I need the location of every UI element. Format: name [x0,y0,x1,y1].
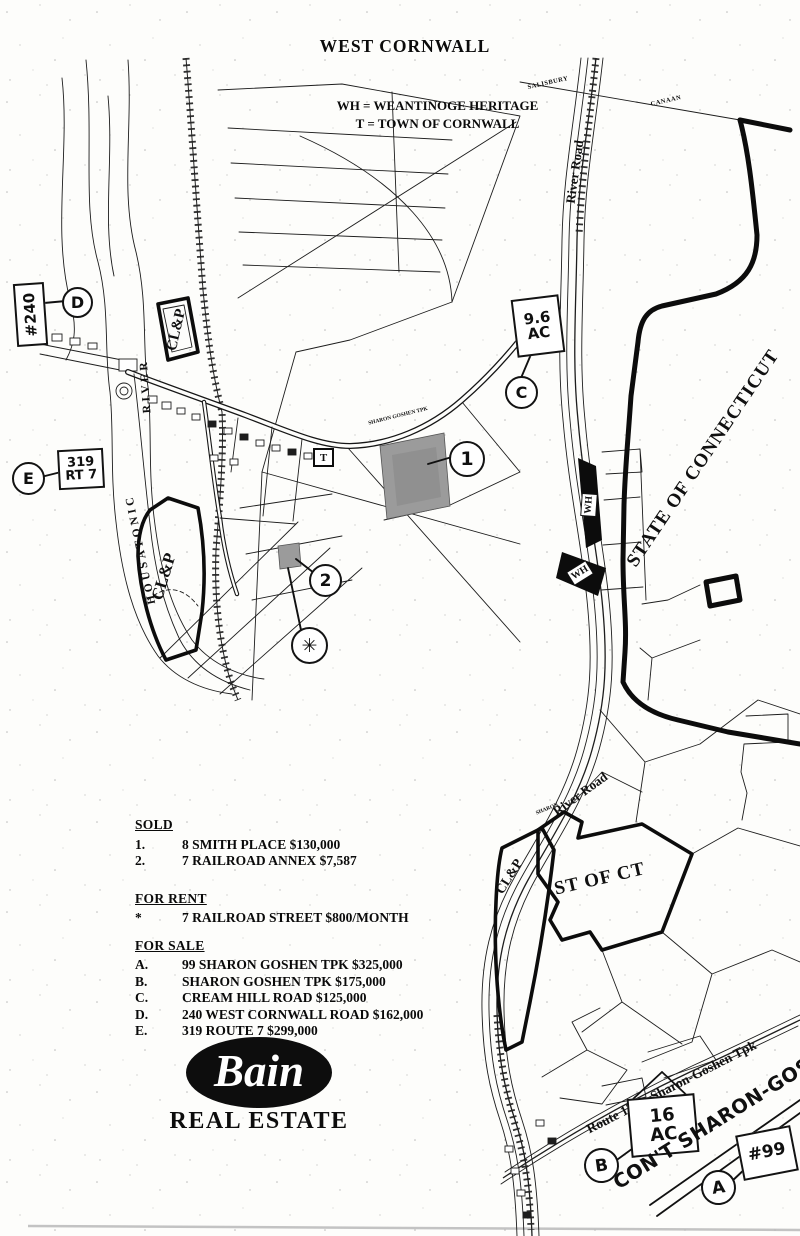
for-sale-heading: FOR SALE [135,938,485,955]
map-legend: WH = WEANTINOGE HERITAGE T = TOWN OF COR… [325,97,550,133]
for-rent-item: *7 RAILROAD STREET $800/MONTH [135,910,485,927]
photocopy-speckle [0,0,800,1236]
for-rent-heading: FOR RENT [135,891,485,908]
note-box-9-6-ac: 9.6 AC [511,294,566,357]
sold-item-1: 1.8 SMITH PLACE $130,000 [135,837,485,854]
for-sale-item-e: E.319 ROUTE 7 $299,000 [135,1023,485,1040]
note-box-319-rt7: 319 RT 7 [57,448,105,490]
scanned-map-page: T [0,0,800,1236]
sold-item-2: 2.7 RAILROAD ANNEX $7,587 [135,853,485,870]
marker-circle-d: D [62,287,93,318]
marker-circle-c: C [505,376,538,409]
sold-heading: SOLD [135,817,485,834]
bain-logo: Bain [186,1037,332,1108]
t-box-label: T [320,452,328,464]
marker-circle-e: E [12,462,45,495]
for-sale-item-b: B.SHARON GOSHEN TPK $175,000 [135,974,485,991]
map-canvas: T [0,0,800,1236]
legend-wh-line: WH = WEANTINOGE HERITAGE [325,97,550,115]
for-sale-item-c: C.CREAM HILL ROAD $125,000 [135,990,485,1007]
listings-block: SOLD 1.8 SMITH PLACE $130,000 2.7 RAILRO… [135,817,485,1040]
wh-1-label: WH [583,496,595,515]
for-sale-item-d: D.240 WEST CORNWALL ROAD $162,000 [135,1007,485,1024]
marker-circle-2: 2 [309,564,342,597]
marker-circle-1: 1 [449,441,485,477]
for-sale-item-a: A.99 SHARON GOSHEN TPK $325,000 [135,957,485,974]
town-of-cornwall-parcel: T [314,449,333,466]
sold-parcel-2 [278,543,301,569]
note-box-240: #240 [13,282,48,347]
marker-circle-asterisk: ✳ [291,627,328,664]
bain-logo-name: Bain [214,1045,304,1097]
legend-t-line: T = TOWN OF CORNWALL [325,115,550,133]
page-title: WEST CORNWALL [270,36,540,57]
sold-parcel-1 [380,433,450,519]
bain-logo-tagline: REAL ESTATE [166,1108,352,1135]
